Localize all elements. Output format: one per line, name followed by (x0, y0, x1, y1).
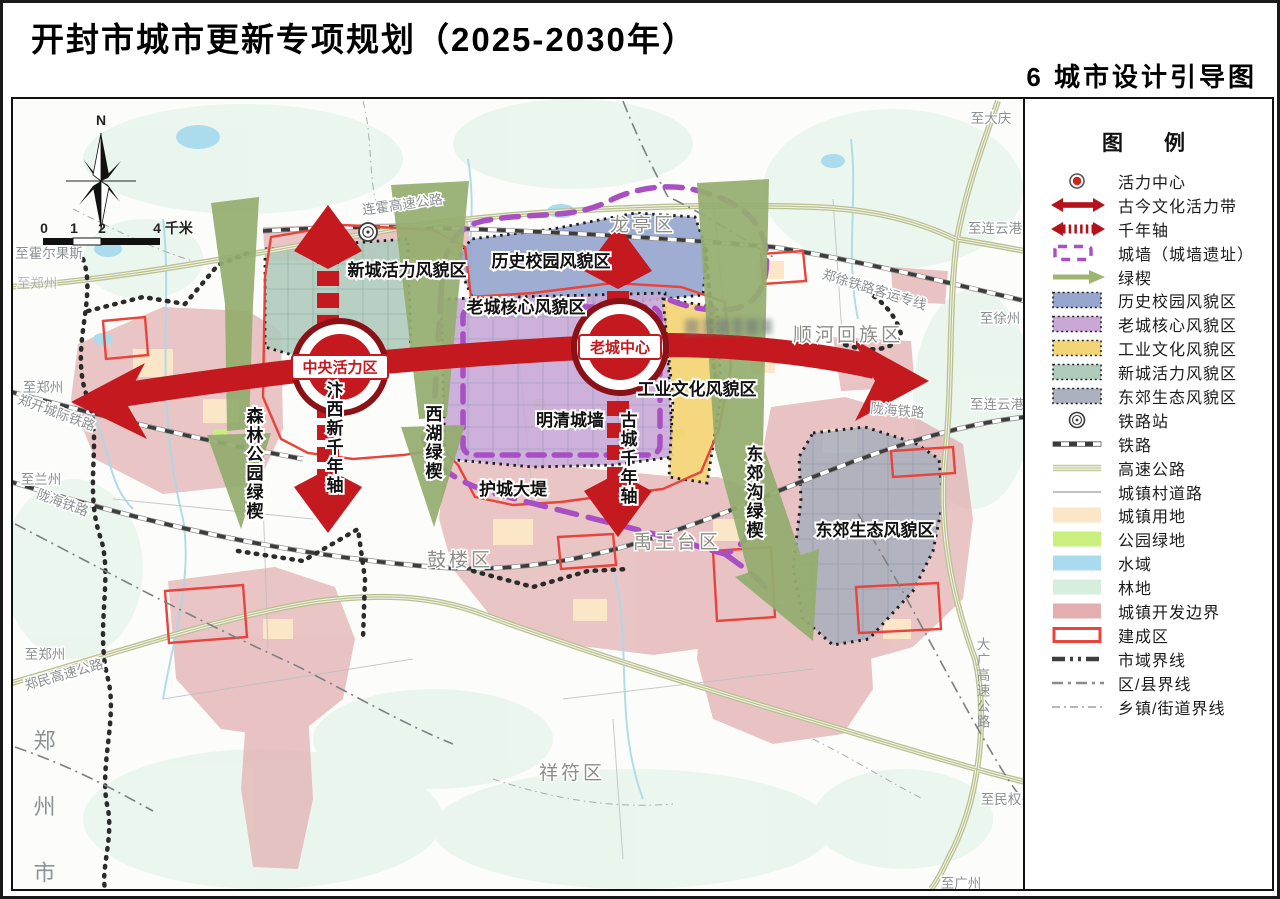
label-mingqing-wall: 明清城墙 (536, 410, 604, 430)
vitality-center-icon (1049, 171, 1107, 191)
legend-item-urban-land: 城镇用地 (1025, 503, 1272, 527)
legend-item-vitality-center: 活力中心 (1025, 169, 1272, 193)
label-gulou: 鼓楼区 (427, 549, 493, 571)
label-yuwangtai: 禹王台区 (633, 531, 721, 553)
city-design-map: 中央活力区 老城中心 新城活力风貌区 历史校园风貌区 老城核心风貌区 工业文化风… (13, 99, 1025, 889)
legend-item-dev-boundary: 城镇开发边界 (1025, 599, 1272, 623)
label-to-minquan: 至民权 (981, 791, 1022, 807)
railway-station-icon (359, 223, 377, 241)
legend-item-town-road: 城镇村道路 (1025, 480, 1272, 504)
central-vitality-label: 中央活力区 (302, 359, 377, 377)
green-wedge-icon (1049, 267, 1107, 287)
oldtown-center-label: 老城中心 (589, 339, 650, 357)
township-boundary-icon (1049, 697, 1107, 717)
legend-item-county-boundary: 区/县界线 (1025, 671, 1272, 695)
legend-item-culture-belt: 古今文化活力带 (1025, 193, 1272, 217)
zone-newcity-swatch (1049, 362, 1107, 382)
page-subtitle: 6 城市设计引导图 (1026, 57, 1257, 94)
urban-land-swatch (1049, 505, 1107, 525)
label-zone-history: 历史校园风貌区 (492, 251, 611, 271)
dev-boundary-swatch (1049, 601, 1107, 621)
forest-swatch (1049, 577, 1107, 597)
zone-oldcore-swatch (1049, 314, 1107, 334)
rail-station-icon (1049, 410, 1107, 430)
label-zone-oldcore: 老城核心风貌区 (466, 297, 586, 317)
legend-item-water: 水域 (1025, 551, 1272, 575)
legend-item-railway: 铁路 (1025, 432, 1272, 456)
label-to-lianyungang-n: 至连云港 (968, 221, 1022, 236)
label-gucheng-axis: 古城千年轴 (618, 410, 638, 506)
legend-list: 活力中心 古今文化活力带 千年轴 城墙（城墙遗址） 绿楔 历史校园风貌区 (1025, 169, 1272, 718)
label-dongjiaogou-wedge: 东郊沟绿楔 (744, 444, 764, 540)
legend-item-rail-station: 铁路站 (1025, 408, 1272, 432)
label-to-xuzhou: 至徐州 (980, 311, 1021, 326)
legend-item-built-area: 建成区 (1025, 623, 1272, 647)
label-to-zhengzhou-s: 至郑州 (25, 647, 66, 662)
built-area-icon (1049, 625, 1107, 645)
scale-2: 2 (98, 220, 106, 236)
zone-easteco-swatch (1049, 386, 1107, 406)
legend-item-millennium-axis: 千年轴 (1025, 217, 1272, 241)
scale-0: 0 (40, 220, 48, 236)
county-boundary-icon (1049, 673, 1107, 693)
map-panel: 中央活力区 老城中心 新城活力风貌区 历史校园风貌区 老城核心风貌区 工业文化风… (13, 99, 1025, 889)
label-to-lanzhou: 至兰州 (21, 472, 62, 487)
zone-history-swatch (1049, 290, 1107, 310)
city-wall-icon (1049, 243, 1107, 263)
legend-item-zone-industry: 工业文化风貌区 (1025, 336, 1272, 360)
label-daguang-expressway: 大广高速公路 (975, 637, 991, 730)
label-to-daqing: 至大庆 (971, 111, 1012, 126)
scale-4: 4 千米 (153, 220, 194, 236)
label-to-zhengzhou-m: 至郑州 (23, 380, 64, 395)
legend-title: 图 例 (1025, 127, 1272, 157)
label-xiangfu: 祥符区 (539, 762, 605, 784)
label-zhengzhou-city: 郑州市 (31, 729, 56, 889)
label-zone-industry: 工业文化风貌区 (638, 379, 757, 399)
title-block: 开封市城市更新专项规划（2025-2030年） 6 城市设计引导图 (3, 3, 1277, 97)
page-title: 开封市城市更新专项规划（2025-2030年） (31, 13, 697, 61)
legend-item-city-wall: 城墙（城墙遗址） (1025, 241, 1272, 265)
water-swatch (1049, 553, 1107, 573)
sheet-body: 中央活力区 老城中心 新城活力风貌区 历史校园风貌区 老城核心风貌区 工业文化风… (11, 97, 1274, 891)
plan-sheet: 开封市城市更新专项规划（2025-2030年） 6 城市设计引导图 (0, 0, 1280, 899)
label-to-huoerguosi: 至霍尔果斯 (15, 246, 83, 261)
culture-belt-icon (1049, 195, 1107, 215)
label-zone-newcity: 新城活力风貌区 (348, 260, 467, 280)
label-to-guangzhou: 至广州 (941, 876, 982, 889)
label-to-lianyungang-s: 至连云港 (970, 397, 1024, 412)
legend-item-highway: 高速公路 (1025, 456, 1272, 480)
legend-item-zone-newcity: 新城活力风貌区 (1025, 360, 1272, 384)
legend-item-township-boundary: 乡镇/街道界线 (1025, 695, 1272, 719)
label-xihu-wedge: 西湖绿楔 (423, 405, 443, 481)
zone-industry-swatch (1049, 338, 1107, 358)
label-moat-dike: 护城大堤 (479, 479, 548, 499)
millennium-axis-icon (1049, 219, 1107, 239)
compass-north-label: N (96, 112, 106, 128)
legend-item-zone-history: 历史校园风貌区 (1025, 288, 1272, 312)
legend-panel: 图 例 活力中心 古今文化活力带 千年轴 城墙（城墙遗址） 绿楔 (1025, 99, 1272, 889)
railway-icon (1049, 434, 1107, 454)
label-shunhe: 顺河回族区 (793, 324, 903, 346)
legend-item-city-boundary: 市域界线 (1025, 647, 1272, 671)
scale-1: 1 (70, 220, 78, 236)
legend-item-zone-easteco: 东郊生态风貌区 (1025, 384, 1272, 408)
legend-item-zone-oldcore: 老城核心风貌区 (1025, 312, 1272, 336)
legend-item-green-wedge: 绿楔 (1025, 265, 1272, 289)
label-bianxi-axis: 汴西新千年轴 (324, 380, 344, 495)
highway-icon (1049, 458, 1107, 478)
label-to-zhengzhou-n: 至郑州 (17, 276, 58, 291)
legend-item-forest: 林地 (1025, 575, 1272, 599)
city-boundary-icon (1049, 649, 1107, 669)
town-road-icon (1049, 482, 1107, 502)
park-green-swatch (1049, 529, 1107, 549)
label-zone-easteco: 东郊生态风貌区 (816, 520, 935, 540)
legend-item-park-green: 公园绿地 (1025, 527, 1272, 551)
label-forest-wedge: 森林公园绿楔 (244, 406, 264, 521)
label-longting: 龙亭区 (610, 214, 676, 236)
